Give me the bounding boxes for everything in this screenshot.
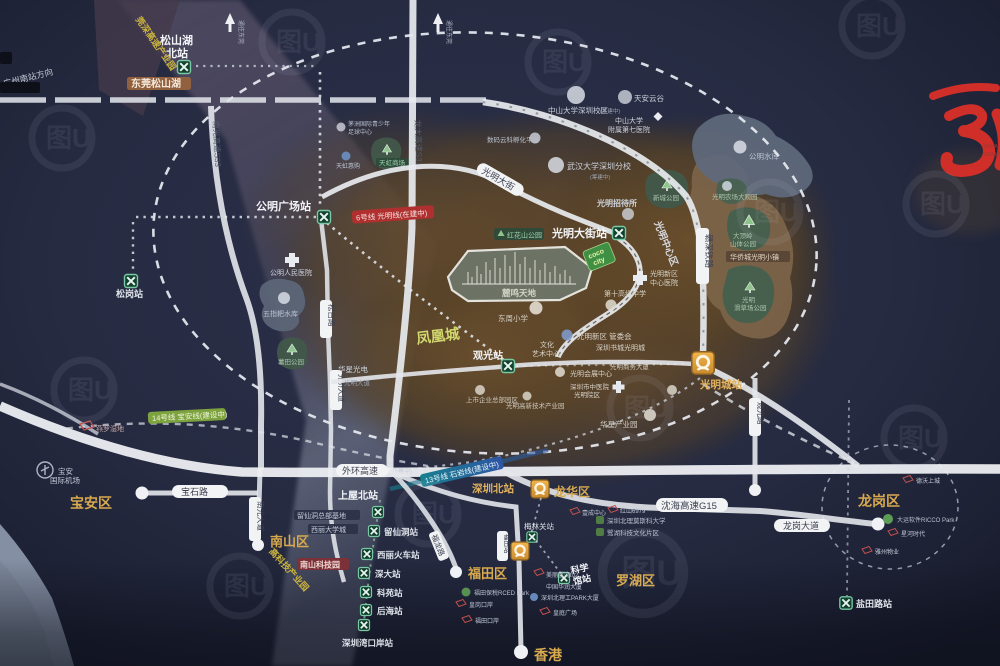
svg-text:梅林关站: 梅林关站 — [524, 521, 554, 531]
svg-text:天安云谷: 天安云谷 — [634, 93, 664, 103]
svg-text:宝安区: 宝安区 — [70, 495, 112, 511]
svg-text:GREEN: GREEN — [984, 152, 1000, 158]
svg-text:新城公园: 新城公园 — [653, 193, 679, 202]
svg-text:东莞松山湖: 东莞松山湖 — [131, 77, 181, 90]
svg-text:山体公园: 山体公园 — [730, 239, 756, 248]
svg-text:光明院区: 光明院区 — [574, 390, 601, 399]
svg-text:观光站: 观光站 — [473, 349, 503, 362]
svg-text:南光大道: 南光大道 — [256, 501, 266, 531]
svg-text:公明人民医院: 公明人民医院 — [270, 268, 312, 277]
svg-text:龙岗大道: 龙岗大道 — [783, 520, 819, 531]
svg-text:赣深铁路: 赣深铁路 — [704, 234, 714, 269]
svg-text:红花山公园: 红花山公园 — [507, 231, 542, 240]
svg-text:深圳湾口岸站: 深圳湾口岸站 — [342, 638, 394, 648]
svg-text:光明: 光明 — [742, 295, 756, 304]
svg-text:足球中心: 足球中心 — [348, 128, 372, 136]
svg-text:中心医院: 中心医院 — [650, 278, 678, 287]
svg-text:龙大高速S31: 龙大高速S31 — [413, 120, 425, 167]
svg-text:深圳市中医院: 深圳市中医院 — [570, 382, 610, 391]
svg-text:大运软件RICCO Park: 大运软件RICCO Park — [897, 516, 955, 524]
svg-text:龙华区: 龙华区 — [554, 484, 590, 499]
svg-text:星河时代: 星河时代 — [901, 530, 925, 538]
svg-text:深圳北站: 深圳北站 — [472, 482, 514, 495]
svg-text:茅洲国际青少年: 茅洲国际青少年 — [348, 120, 390, 128]
svg-text:中山大学: 中山大学 — [615, 116, 643, 125]
svg-text:国际机场: 国际机场 — [50, 475, 80, 485]
svg-text:光明会展中心: 光明会展中心 — [570, 369, 612, 378]
svg-text:雅州物业: 雅州物业 — [875, 548, 899, 556]
svg-text:盐田路站: 盐田路站 — [856, 598, 892, 609]
svg-text:香港: 香港 — [533, 647, 563, 663]
svg-text:外环高速: 外环高速 — [342, 465, 378, 476]
svg-text:福田区: 福田区 — [467, 566, 507, 581]
svg-text:松山湖: 松山湖 — [160, 33, 193, 47]
svg-text:燕罗湿地: 燕罗湿地 — [96, 424, 124, 433]
svg-text:西丽火车站: 西丽火车站 — [377, 550, 420, 560]
svg-text:光明新区: 光明新区 — [650, 269, 678, 278]
svg-text:通往东莞: 通往东莞 — [237, 20, 245, 44]
svg-text:深圳书城光明城: 深圳书城光明城 — [596, 343, 645, 352]
svg-text:沈海高速G15: 沈海高速G15 — [661, 500, 717, 512]
svg-text:观光路: 观光路 — [756, 402, 766, 425]
svg-text:附属第七医院: 附属第七医院 — [608, 125, 650, 134]
svg-text:光侨大道: 光侨大道 — [337, 374, 346, 402]
svg-text:华侨城光明小镇: 华侨城光明小镇 — [730, 253, 779, 262]
svg-text:南山科技园: 南山科技园 — [300, 560, 340, 570]
svg-text:宝石路: 宝石路 — [181, 486, 208, 497]
svg-text:光明大道: 光明大道 — [344, 378, 371, 387]
svg-text:华星光电: 华星光电 — [338, 364, 368, 374]
svg-text:龙岗区: 龙岗区 — [857, 493, 900, 509]
svg-text:艺术中心: 艺术中心 — [532, 349, 560, 358]
svg-text:数码云科孵化平台: 数码云科孵化平台 — [487, 135, 539, 144]
svg-text:(筹建中): (筹建中) — [590, 173, 610, 181]
svg-text:五指耙水库: 五指耙水库 — [263, 309, 298, 318]
svg-text:薯田公园: 薯田公园 — [278, 357, 304, 366]
svg-text:光明高新技术产业园: 光明高新技术产业园 — [506, 401, 565, 410]
svg-text:深圳北理工PARK大厦: 深圳北理工PARK大厦 — [541, 594, 599, 602]
svg-text:东周小学: 东周小学 — [498, 313, 528, 323]
svg-text:深大站: 深大站 — [375, 569, 401, 579]
svg-text:上屋北站: 上屋北站 — [338, 489, 378, 502]
svg-text:光明新区 管委会: 光明新区 管委会 — [577, 331, 632, 341]
svg-text:光明招待所: 光明招待所 — [596, 198, 637, 208]
svg-text:壹成中心: 壹成中心 — [582, 509, 606, 517]
svg-text:美丽蓝湾t02: 美丽蓝湾t02 — [546, 571, 579, 579]
svg-text:松岗站: 松岗站 — [116, 288, 143, 299]
svg-text:德沃上城: 德沃上城 — [916, 477, 940, 485]
svg-text:第十高级中学: 第十高级中学 — [604, 289, 646, 298]
svg-text:福田口岸: 福田口岸 — [475, 617, 499, 625]
svg-text:红山6979: 红山6979 — [620, 507, 646, 515]
svg-text:光明城站: 光明城站 — [699, 378, 742, 391]
svg-text:ROYAL: ROYAL — [984, 144, 1000, 150]
svg-text:武汉大学深圳分校: 武汉大学深圳分校 — [567, 161, 631, 171]
svg-text:福田保税RCED Park: 福田保税RCED Park — [474, 589, 530, 597]
svg-text:宝安: 宝安 — [58, 466, 73, 476]
svg-text:松白路: 松白路 — [327, 304, 337, 327]
svg-text:深圳北理莫斯科大学: 深圳北理莫斯科大学 — [607, 516, 666, 525]
svg-text:西丽大学城: 西丽大学城 — [311, 525, 346, 534]
svg-text:留仙洞总部基地: 留仙洞总部基地 — [297, 511, 346, 520]
svg-text:公明广场站: 公明广场站 — [256, 199, 311, 213]
svg-text:光明大街站: 光明大街站 — [551, 226, 607, 240]
svg-text:科苑站: 科苑站 — [377, 588, 403, 598]
svg-text:皇岗口岸: 皇岗口岸 — [469, 601, 493, 609]
svg-text:天虹惠购: 天虹惠购 — [336, 162, 360, 170]
svg-text:滑草场公园: 滑草场公园 — [734, 303, 767, 312]
svg-text:皇庭广场: 皇庭广场 — [553, 609, 577, 617]
svg-text:后海站: 后海站 — [377, 606, 403, 616]
svg-text:光明商务大厦: 光明商务大厦 — [610, 362, 650, 371]
svg-text:(筹建中): (筹建中) — [600, 107, 620, 115]
svg-text:中国华润大厦: 中国华润大厦 — [546, 583, 582, 591]
svg-text:麓鸣天地: 麓鸣天地 — [501, 288, 537, 298]
svg-text:通往东莞: 通往东莞 — [445, 20, 453, 44]
svg-text:文化: 文化 — [540, 340, 554, 349]
svg-text:天虹商场: 天虹商场 — [379, 158, 406, 167]
